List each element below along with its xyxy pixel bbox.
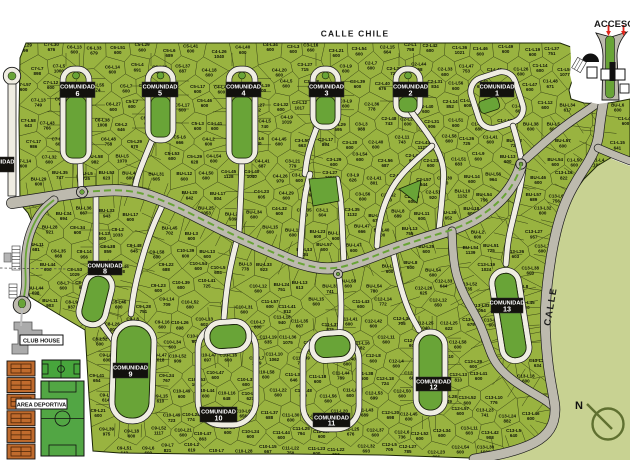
svg-text:600: 600 xyxy=(289,49,297,54)
svg-text:600: 600 xyxy=(205,142,213,147)
svg-text:600: 600 xyxy=(369,358,377,363)
svg-text:600: 600 xyxy=(464,103,472,108)
svg-text:979: 979 xyxy=(276,178,284,183)
svg-text:600: 600 xyxy=(202,393,210,398)
svg-text:679: 679 xyxy=(467,322,475,327)
svg-text:698: 698 xyxy=(32,291,40,296)
svg-text:600: 600 xyxy=(212,375,220,380)
svg-text:894: 894 xyxy=(322,142,330,147)
svg-text:600: 600 xyxy=(168,345,176,350)
svg-text:1062: 1062 xyxy=(269,357,280,362)
svg-text:600: 600 xyxy=(427,163,435,168)
svg-text:600: 600 xyxy=(526,271,534,276)
svg-text:724: 724 xyxy=(381,381,389,386)
svg-text:600: 600 xyxy=(278,435,286,440)
svg-text:699: 699 xyxy=(370,395,378,400)
svg-text:920: 920 xyxy=(429,195,437,200)
svg-text:604: 604 xyxy=(318,213,326,218)
svg-text:751: 751 xyxy=(278,287,286,292)
svg-text:975: 975 xyxy=(103,432,111,437)
svg-text:689: 689 xyxy=(361,413,369,418)
svg-text:600: 600 xyxy=(534,180,542,185)
svg-text:908: 908 xyxy=(486,435,494,440)
svg-text:600: 600 xyxy=(526,87,534,92)
svg-text:619: 619 xyxy=(188,447,196,452)
svg-text:600: 600 xyxy=(203,254,211,259)
svg-text:635: 635 xyxy=(264,339,272,344)
svg-text:600: 600 xyxy=(254,288,262,293)
svg-text:600: 600 xyxy=(44,267,52,272)
svg-text:600: 600 xyxy=(456,411,464,416)
svg-text:776: 776 xyxy=(490,400,498,405)
svg-text:600: 600 xyxy=(332,236,340,241)
svg-text:648: 648 xyxy=(223,396,231,401)
svg-text:725: 725 xyxy=(487,248,495,253)
svg-text:600: 600 xyxy=(242,382,250,387)
svg-text:600: 600 xyxy=(342,103,350,108)
svg-text:600: 600 xyxy=(20,87,28,92)
svg-text:600: 600 xyxy=(504,159,512,164)
svg-text:CLUB HOUSE: CLUB HOUSE xyxy=(23,339,60,345)
svg-text:747: 747 xyxy=(56,175,64,180)
svg-text:600: 600 xyxy=(115,305,123,310)
svg-text:600: 600 xyxy=(614,108,622,113)
svg-text:1139: 1139 xyxy=(466,250,476,255)
svg-text:600: 600 xyxy=(386,269,394,274)
svg-text:939: 939 xyxy=(229,216,237,221)
svg-text:666: 666 xyxy=(358,229,366,234)
svg-text:600: 600 xyxy=(438,433,446,438)
svg-text:834: 834 xyxy=(431,84,439,89)
svg-text:600: 600 xyxy=(426,48,434,53)
svg-text:10: 10 xyxy=(215,413,223,422)
svg-text:766: 766 xyxy=(43,126,51,131)
svg-text:898: 898 xyxy=(34,71,42,76)
svg-text:676: 676 xyxy=(48,47,56,52)
svg-text:600: 600 xyxy=(239,50,247,55)
svg-text:634: 634 xyxy=(534,363,542,368)
svg-text:603: 603 xyxy=(512,254,520,259)
svg-text:600: 600 xyxy=(179,107,187,112)
svg-text:600: 600 xyxy=(182,253,190,258)
svg-text:600: 600 xyxy=(99,236,107,241)
svg-text:600: 600 xyxy=(346,145,354,150)
svg-text:600: 600 xyxy=(359,196,367,201)
svg-text:600: 600 xyxy=(346,393,354,398)
svg-text:600: 600 xyxy=(318,434,326,439)
svg-text:600: 600 xyxy=(247,434,255,439)
svg-text:600: 600 xyxy=(94,413,102,418)
svg-text:600: 600 xyxy=(128,104,136,109)
svg-text:810: 810 xyxy=(454,377,462,382)
svg-text:CALLE CHILE: CALLE CHILE xyxy=(321,29,390,39)
svg-text:600: 600 xyxy=(350,248,358,253)
svg-text:600: 600 xyxy=(103,358,111,363)
svg-text:600: 600 xyxy=(179,433,187,438)
svg-text:600: 600 xyxy=(372,432,380,437)
svg-text:614: 614 xyxy=(102,397,110,402)
svg-text:600: 600 xyxy=(225,358,233,363)
svg-text:600: 600 xyxy=(372,145,380,150)
svg-text:6: 6 xyxy=(76,89,80,98)
svg-text:1117: 1117 xyxy=(154,430,164,435)
svg-text:794: 794 xyxy=(297,431,305,436)
svg-text:671: 671 xyxy=(547,84,555,89)
svg-text:640: 640 xyxy=(510,433,518,438)
svg-text:600: 600 xyxy=(275,142,283,147)
svg-text:1070: 1070 xyxy=(117,159,128,164)
svg-text:600: 600 xyxy=(138,47,146,52)
svg-text:715: 715 xyxy=(301,67,309,72)
svg-text:600: 600 xyxy=(314,379,322,384)
svg-text:600: 600 xyxy=(60,286,68,291)
svg-text:758: 758 xyxy=(105,142,113,147)
svg-text:705: 705 xyxy=(386,447,394,452)
svg-text:600: 600 xyxy=(320,247,328,252)
svg-text:676: 676 xyxy=(379,86,387,91)
svg-text:1021: 1021 xyxy=(455,50,466,55)
svg-text:600: 600 xyxy=(452,123,460,128)
svg-text:600: 600 xyxy=(35,181,43,186)
svg-text:600: 600 xyxy=(274,393,282,398)
svg-text:694: 694 xyxy=(60,216,68,221)
svg-text:AREA DEPORTIVA: AREA DEPORTIVA xyxy=(17,403,66,409)
svg-text:600: 600 xyxy=(267,47,275,52)
svg-text:906: 906 xyxy=(428,124,436,129)
svg-text:600: 600 xyxy=(153,254,161,259)
svg-text:909: 909 xyxy=(174,359,182,364)
svg-text:600: 600 xyxy=(529,52,537,57)
svg-text:600: 600 xyxy=(527,127,535,132)
svg-text:600: 600 xyxy=(254,325,262,330)
svg-text:600: 600 xyxy=(405,417,413,422)
svg-text:779: 779 xyxy=(289,164,297,169)
svg-text:1040: 1040 xyxy=(247,174,258,179)
svg-text:1077: 1077 xyxy=(560,72,571,77)
svg-text:600: 600 xyxy=(314,234,322,239)
svg-text:882: 882 xyxy=(504,419,512,424)
svg-text:4: 4 xyxy=(242,88,246,97)
svg-text:697: 697 xyxy=(204,358,212,363)
svg-text:667: 667 xyxy=(264,449,272,454)
svg-text:1024: 1024 xyxy=(481,267,492,272)
svg-text:689: 689 xyxy=(394,214,402,219)
svg-text:725: 725 xyxy=(203,283,211,288)
svg-text:695: 695 xyxy=(334,127,342,132)
svg-text:600: 600 xyxy=(283,195,291,200)
svg-text:756: 756 xyxy=(480,197,488,202)
svg-text:600: 600 xyxy=(295,178,303,183)
svg-text:600: 600 xyxy=(177,285,185,290)
svg-text:600: 600 xyxy=(250,215,258,220)
svg-text:600: 600 xyxy=(266,304,274,309)
svg-text:736: 736 xyxy=(398,435,406,440)
svg-text:600: 600 xyxy=(96,341,104,346)
svg-text:600: 600 xyxy=(475,156,483,161)
svg-text:605: 605 xyxy=(153,176,161,181)
svg-text:600: 600 xyxy=(445,139,453,144)
svg-text:600: 600 xyxy=(287,418,295,423)
svg-text:702: 702 xyxy=(166,231,174,236)
svg-text:11: 11 xyxy=(328,418,336,427)
svg-text:644: 644 xyxy=(420,182,428,187)
svg-text:600: 600 xyxy=(266,230,274,235)
svg-text:1132: 1132 xyxy=(347,212,357,217)
svg-text:600: 600 xyxy=(422,109,430,114)
svg-text:645: 645 xyxy=(130,248,138,253)
svg-text:600: 600 xyxy=(194,266,202,271)
svg-text:600: 600 xyxy=(474,235,482,240)
svg-text:749: 749 xyxy=(35,102,43,107)
svg-text:600: 600 xyxy=(539,211,547,216)
svg-text:687: 687 xyxy=(382,163,390,168)
svg-text:666: 666 xyxy=(176,140,184,145)
svg-text:600: 600 xyxy=(345,283,353,288)
svg-text:691: 691 xyxy=(134,67,142,72)
svg-text:600: 600 xyxy=(224,430,232,435)
svg-text:600: 600 xyxy=(571,163,579,168)
svg-text:600: 600 xyxy=(127,217,135,222)
svg-text:600: 600 xyxy=(194,89,202,94)
svg-text:646: 646 xyxy=(117,127,125,132)
svg-text:600: 600 xyxy=(277,107,285,112)
svg-text:13: 13 xyxy=(503,304,511,313)
svg-text:600: 600 xyxy=(181,176,189,181)
svg-text:921: 921 xyxy=(46,230,54,235)
svg-text:667: 667 xyxy=(80,211,88,216)
svg-text:642: 642 xyxy=(186,195,194,200)
svg-text:664: 664 xyxy=(384,50,392,55)
svg-text:600: 600 xyxy=(20,163,28,168)
svg-text:1008: 1008 xyxy=(97,123,108,128)
svg-text:689: 689 xyxy=(530,197,538,202)
svg-text:725: 725 xyxy=(463,141,471,146)
svg-text:622: 622 xyxy=(445,326,453,331)
svg-text:600: 600 xyxy=(110,107,118,112)
svg-text:1029: 1029 xyxy=(70,272,81,277)
svg-text:821: 821 xyxy=(164,448,172,453)
svg-text:789: 789 xyxy=(337,376,345,381)
svg-text:1: 1 xyxy=(495,88,499,97)
svg-text:600: 600 xyxy=(463,400,471,405)
svg-text:988: 988 xyxy=(358,126,366,131)
svg-text:641: 641 xyxy=(614,145,622,150)
svg-text:723: 723 xyxy=(168,418,176,423)
svg-text:689: 689 xyxy=(166,53,174,58)
svg-text:ACCESO: ACCESO xyxy=(594,19,630,30)
svg-text:801: 801 xyxy=(370,181,378,186)
svg-text:600: 600 xyxy=(355,51,363,56)
svg-text:628: 628 xyxy=(191,159,199,164)
svg-text:600: 600 xyxy=(218,89,226,94)
svg-text:600: 600 xyxy=(370,324,378,329)
svg-text:600: 600 xyxy=(477,51,485,56)
svg-text:600: 600 xyxy=(178,394,186,399)
svg-text:600: 600 xyxy=(201,103,209,108)
svg-text:688: 688 xyxy=(266,415,274,420)
svg-text:1017: 1017 xyxy=(294,105,305,110)
svg-text:600: 600 xyxy=(262,375,270,380)
svg-text:698: 698 xyxy=(387,415,395,420)
svg-text:600: 600 xyxy=(356,157,364,162)
svg-text:600: 600 xyxy=(128,434,136,439)
svg-text:600: 600 xyxy=(393,364,401,369)
svg-text:758: 758 xyxy=(407,47,415,52)
svg-text:613: 613 xyxy=(296,285,304,290)
svg-text:600: 600 xyxy=(456,450,464,455)
svg-text:600: 600 xyxy=(342,69,350,74)
svg-text:743: 743 xyxy=(398,140,406,145)
svg-text:600: 600 xyxy=(423,249,431,254)
svg-text:822: 822 xyxy=(560,175,568,180)
svg-text:741: 741 xyxy=(481,413,489,418)
svg-text:774: 774 xyxy=(187,417,195,422)
svg-text:740: 740 xyxy=(261,124,269,129)
svg-text:COMUNIDAD: COMUNIDAD xyxy=(0,160,14,166)
svg-text:741: 741 xyxy=(326,289,334,294)
svg-text:676: 676 xyxy=(347,432,355,437)
svg-text:600: 600 xyxy=(202,175,210,180)
svg-text:600: 600 xyxy=(470,364,478,369)
svg-text:600: 600 xyxy=(475,376,483,381)
svg-text:600: 600 xyxy=(45,160,53,165)
svg-text:600: 600 xyxy=(551,162,559,167)
svg-text:646: 646 xyxy=(290,377,298,382)
svg-text:600: 600 xyxy=(126,176,134,181)
svg-text:1075: 1075 xyxy=(283,340,294,345)
svg-text:N: N xyxy=(575,400,583,412)
svg-text:600: 600 xyxy=(282,84,290,89)
svg-text:670: 670 xyxy=(131,144,139,149)
svg-text:600: 600 xyxy=(429,272,437,277)
svg-text:681: 681 xyxy=(32,247,40,252)
svg-text:687: 687 xyxy=(258,164,266,169)
svg-text:756: 756 xyxy=(552,199,560,204)
svg-text:600: 600 xyxy=(345,322,353,327)
svg-text:623: 623 xyxy=(103,175,111,180)
svg-text:778: 778 xyxy=(368,107,376,112)
svg-text:600: 600 xyxy=(538,249,546,254)
svg-text:600: 600 xyxy=(517,72,525,77)
svg-text:1128: 1128 xyxy=(224,174,234,179)
svg-text:663: 663 xyxy=(298,143,306,148)
svg-text:8: 8 xyxy=(103,266,107,275)
svg-text:600: 600 xyxy=(333,53,341,58)
svg-text:600: 600 xyxy=(454,344,462,349)
svg-text:644: 644 xyxy=(440,284,448,289)
svg-text:600: 600 xyxy=(407,265,415,270)
svg-text:600: 600 xyxy=(74,230,82,235)
svg-text:812: 812 xyxy=(283,309,291,314)
svg-text:600: 600 xyxy=(416,436,424,441)
svg-text:600: 600 xyxy=(441,72,449,77)
svg-text:1019: 1019 xyxy=(282,120,293,125)
svg-text:600: 600 xyxy=(486,140,494,145)
svg-text:600: 600 xyxy=(527,416,535,421)
svg-text:688: 688 xyxy=(162,267,170,272)
svg-text:600: 600 xyxy=(330,162,338,167)
svg-text:772: 772 xyxy=(379,301,387,306)
svg-text:600: 600 xyxy=(71,50,79,55)
svg-text:650: 650 xyxy=(434,302,442,307)
svg-text:982: 982 xyxy=(91,159,99,164)
svg-text:625: 625 xyxy=(420,291,428,296)
svg-text:668: 668 xyxy=(55,254,63,259)
svg-text:3: 3 xyxy=(325,88,329,97)
svg-text:804: 804 xyxy=(214,196,222,201)
svg-text:693: 693 xyxy=(362,449,370,454)
svg-text:617: 617 xyxy=(564,108,572,113)
svg-text:600: 600 xyxy=(186,305,194,310)
svg-text:751: 751 xyxy=(548,51,556,56)
svg-text:9: 9 xyxy=(129,369,133,378)
svg-text:709: 709 xyxy=(163,302,171,307)
svg-text:986: 986 xyxy=(30,144,38,149)
svg-text:600: 600 xyxy=(47,85,55,90)
svg-text:600: 600 xyxy=(343,362,351,367)
svg-text:626: 626 xyxy=(349,178,357,183)
svg-text:957: 957 xyxy=(530,234,538,239)
svg-text:654: 654 xyxy=(93,378,101,383)
svg-text:600: 600 xyxy=(188,236,196,241)
svg-text:2: 2 xyxy=(409,88,413,97)
svg-text:600: 600 xyxy=(210,159,218,164)
svg-text:600: 600 xyxy=(276,211,284,216)
svg-text:679: 679 xyxy=(90,51,98,56)
svg-text:600: 600 xyxy=(324,399,332,404)
svg-text:600: 600 xyxy=(122,89,130,94)
svg-text:600: 600 xyxy=(382,340,390,345)
svg-text:940: 940 xyxy=(278,320,286,325)
svg-text:751: 751 xyxy=(140,309,148,314)
svg-text:5: 5 xyxy=(158,88,162,97)
svg-text:600: 600 xyxy=(289,233,297,238)
svg-text:600: 600 xyxy=(502,49,510,54)
svg-text:600: 600 xyxy=(357,304,365,309)
svg-text:600: 600 xyxy=(367,66,375,71)
svg-text:743: 743 xyxy=(385,121,393,126)
svg-text:683: 683 xyxy=(455,161,463,166)
svg-text:687: 687 xyxy=(179,68,187,73)
svg-text:753: 753 xyxy=(462,68,470,73)
svg-text:600: 600 xyxy=(312,302,320,307)
svg-text:605: 605 xyxy=(258,194,266,199)
svg-text:600: 600 xyxy=(240,309,248,314)
svg-text:600: 600 xyxy=(276,73,284,78)
svg-text:698: 698 xyxy=(176,325,184,330)
svg-text:780: 780 xyxy=(370,289,378,294)
svg-text:859: 859 xyxy=(104,249,112,254)
svg-text:600: 600 xyxy=(452,86,460,91)
svg-text:785: 785 xyxy=(404,449,412,454)
svg-text:937: 937 xyxy=(68,305,76,310)
svg-text:852: 852 xyxy=(446,104,454,109)
svg-text:604: 604 xyxy=(214,270,222,275)
svg-text:603: 603 xyxy=(465,431,473,436)
svg-text:600: 600 xyxy=(404,122,412,127)
svg-text:964: 964 xyxy=(489,177,497,182)
svg-text:667: 667 xyxy=(296,323,304,328)
svg-text:600: 600 xyxy=(114,50,122,55)
svg-text:652: 652 xyxy=(445,215,453,220)
svg-text:755: 755 xyxy=(406,231,414,236)
svg-text:956: 956 xyxy=(80,254,88,259)
svg-text:600: 600 xyxy=(559,143,567,148)
svg-text:600: 600 xyxy=(187,48,195,53)
svg-text:600: 600 xyxy=(418,216,426,221)
svg-text:600: 600 xyxy=(154,288,162,293)
svg-text:12: 12 xyxy=(430,382,438,391)
